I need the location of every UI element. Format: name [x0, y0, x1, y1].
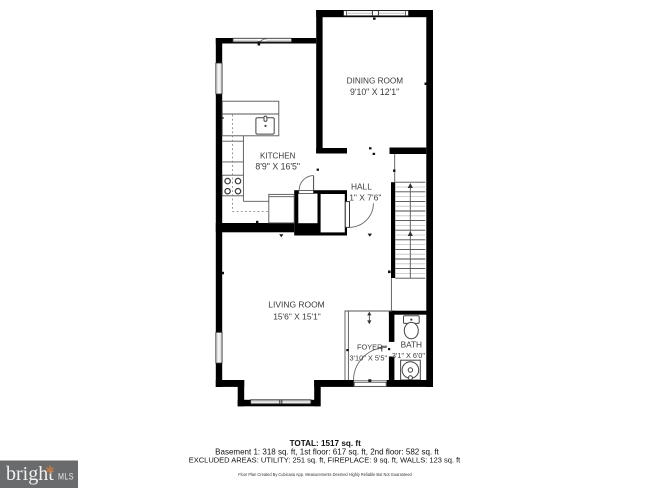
- svg-text:FOYER: FOYER: [357, 343, 383, 352]
- svg-text:3'1" X 6'0": 3'1" X 6'0": [392, 351, 425, 360]
- svg-text:9'10" X 12'1": 9'10" X 12'1": [350, 87, 399, 97]
- svg-text:EXCLUDED AREAS: UTILITY: 251 s: EXCLUDED AREAS: UTILITY: 251 sq. ft, FIR…: [189, 456, 461, 465]
- svg-text:DINING ROOM: DINING ROOM: [347, 76, 404, 86]
- svg-text:1" X 7'6": 1" X 7'6": [349, 193, 381, 203]
- svg-text:Floor Plan Created By Cubicasa: Floor Plan Created By Cubicasa App. Meas…: [238, 472, 412, 477]
- svg-text:HALL: HALL: [351, 181, 372, 191]
- svg-text:8'9" X 16'5": 8'9" X 16'5": [255, 162, 300, 172]
- svg-text:KITCHEN: KITCHEN: [260, 151, 295, 161]
- svg-text:MLS: MLS: [58, 471, 74, 481]
- svg-text:bright: bright: [6, 463, 54, 485]
- svg-text:3'10" X 5'5": 3'10" X 5'5": [349, 354, 387, 363]
- svg-text:LIVING ROOM: LIVING ROOM: [268, 299, 325, 309]
- svg-text:15'6" X 15'1": 15'6" X 15'1": [273, 312, 321, 322]
- svg-text:BATH: BATH: [401, 339, 422, 349]
